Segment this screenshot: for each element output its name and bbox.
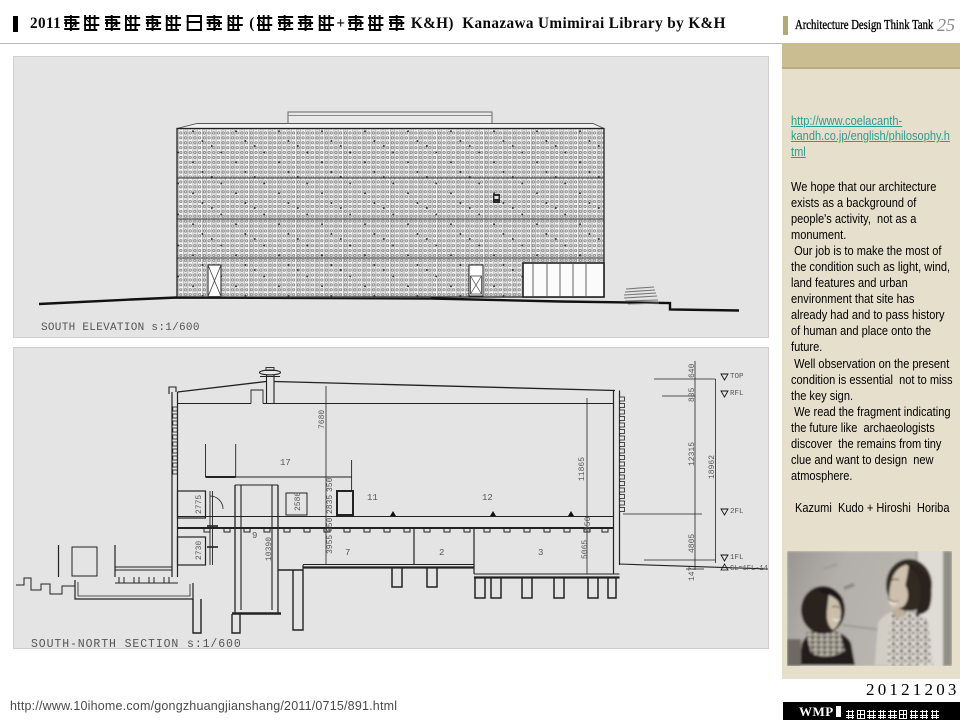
svg-text:9: 9	[252, 531, 257, 541]
svg-text:11: 11	[367, 493, 378, 503]
svg-text:2835: 2835	[326, 495, 335, 514]
svg-text:850: 850	[326, 517, 335, 532]
svg-text:640: 640	[688, 363, 697, 378]
svg-text:17: 17	[280, 458, 291, 468]
svg-text:2775: 2775	[195, 495, 204, 514]
svg-text:SOUTH ELEVATION s:1/600: SOUTH ELEVATION s:1/600	[41, 322, 200, 334]
svg-text:5065: 5065	[581, 540, 590, 559]
svg-text:350: 350	[326, 477, 335, 492]
svg-text:3955: 3955	[326, 535, 335, 554]
svg-text:18962: 18962	[708, 455, 717, 479]
svg-text:850: 850	[584, 516, 593, 531]
svg-text:4805: 4805	[688, 534, 697, 553]
svg-text:7: 7	[345, 548, 350, 558]
svg-text:10390: 10390	[265, 537, 274, 561]
svg-text:835: 835	[688, 387, 697, 402]
svg-text:TOP: TOP	[730, 373, 744, 381]
svg-text:12: 12	[482, 493, 493, 503]
svg-text:1FL: 1FL	[730, 554, 744, 562]
svg-text:147: 147	[688, 566, 697, 581]
svg-text:SOUTH-NORTH SECTION s:1/600: SOUTH-NORTH SECTION s:1/600	[31, 638, 242, 648]
svg-text:2: 2	[439, 548, 444, 558]
svg-text:7680: 7680	[318, 410, 327, 429]
svg-text:11865: 11865	[578, 457, 587, 481]
svg-text:2580: 2580	[294, 492, 303, 511]
svg-text:2FL: 2FL	[730, 508, 744, 516]
svg-text:12315: 12315	[688, 442, 697, 466]
svg-text:3: 3	[538, 548, 543, 558]
svg-text:GL=1FL-147: GL=1FL-147	[730, 565, 768, 573]
svg-text:2730: 2730	[195, 541, 204, 560]
svg-text:RFL: RFL	[730, 390, 744, 398]
